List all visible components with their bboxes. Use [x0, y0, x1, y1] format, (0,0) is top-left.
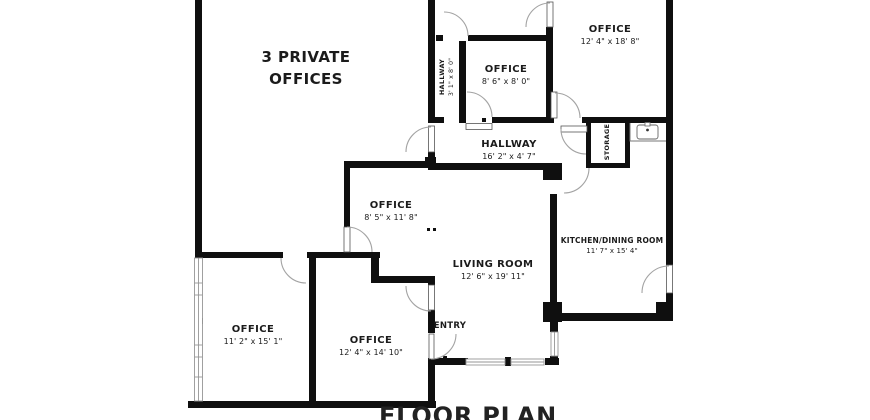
callout-line1: 3 PRIVATE	[262, 46, 351, 68]
floor-plan-walls	[0, 0, 870, 420]
room-label-office-bottom-left: OFFICE 11' 2" x 15' 1"	[224, 324, 283, 346]
room-label-living-room: LIVING ROOM 12' 6" x 19' 11"	[453, 259, 534, 281]
room-label-office-middle: OFFICE 8' 5" x 11' 8"	[364, 200, 418, 222]
room-label-hallway-main: HALLWAY 16' 2" x 4' 7"	[481, 139, 536, 161]
page-title: FLOOR PLAN	[379, 402, 557, 420]
room-label-kitchen-dining: KITCHEN/DINING ROOM 11' 7" x 15' 4"	[561, 237, 664, 255]
room-label-office-top-right: OFFICE 12' 4" x 18' 8"	[581, 24, 640, 46]
room-label-office-bottom-mid: OFFICE 12' 4" x 14' 10"	[339, 335, 403, 357]
room-label-storage: STORAGE	[604, 124, 612, 161]
room-label-office-center-top: OFFICE 8' 6" x 8' 0"	[482, 64, 530, 86]
room-label-top-room-dims: 11' 11" x 10' 1"	[450, 0, 512, 2]
door-leaves	[344, 2, 673, 359]
callout-3-private-offices: 3 PRIVATE OFFICES	[262, 46, 351, 90]
room-label-entry: ENTRY	[434, 321, 466, 331]
kitchen-sink-icon	[630, 123, 666, 142]
floor-plan: 3 PRIVATE OFFICES 11' 11" x 10' 1" OFFIC…	[0, 0, 870, 420]
callout-line2: OFFICES	[262, 68, 351, 90]
room-label-hallway-vertical: HALLWAY 3' 1" x 8' 0"	[439, 58, 455, 96]
